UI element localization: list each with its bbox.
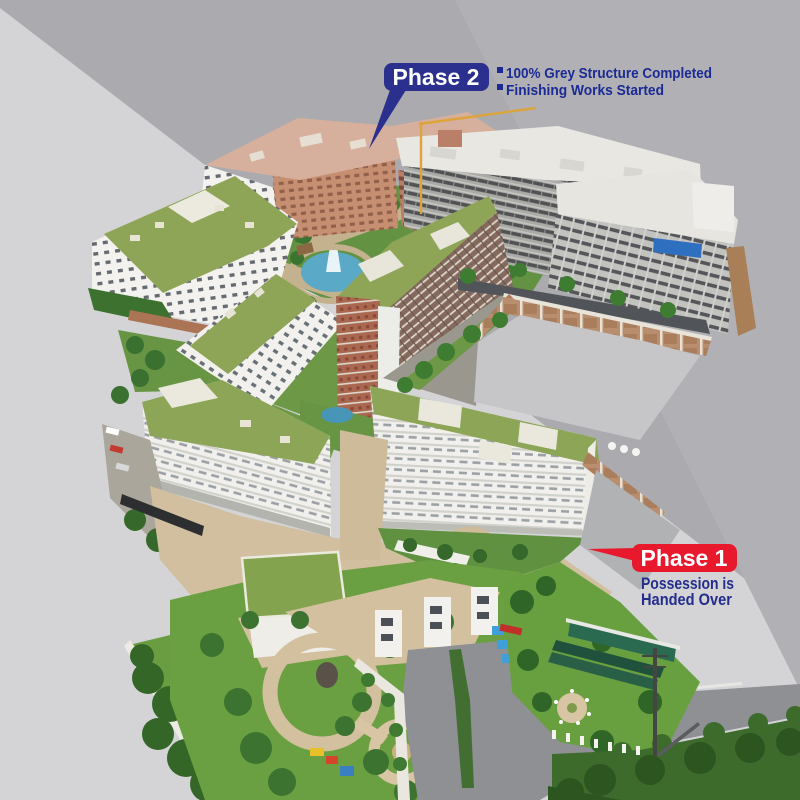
svg-text:100% Grey Structure Completed: 100% Grey Structure Completed <box>506 66 712 82</box>
svg-text:Finishing Works Started: Finishing Works Started <box>506 83 664 99</box>
svg-text:Phase 1: Phase 1 <box>641 545 728 571</box>
svg-text:Handed Over: Handed Over <box>641 591 733 609</box>
svg-text:Phase 2: Phase 2 <box>393 64 480 90</box>
